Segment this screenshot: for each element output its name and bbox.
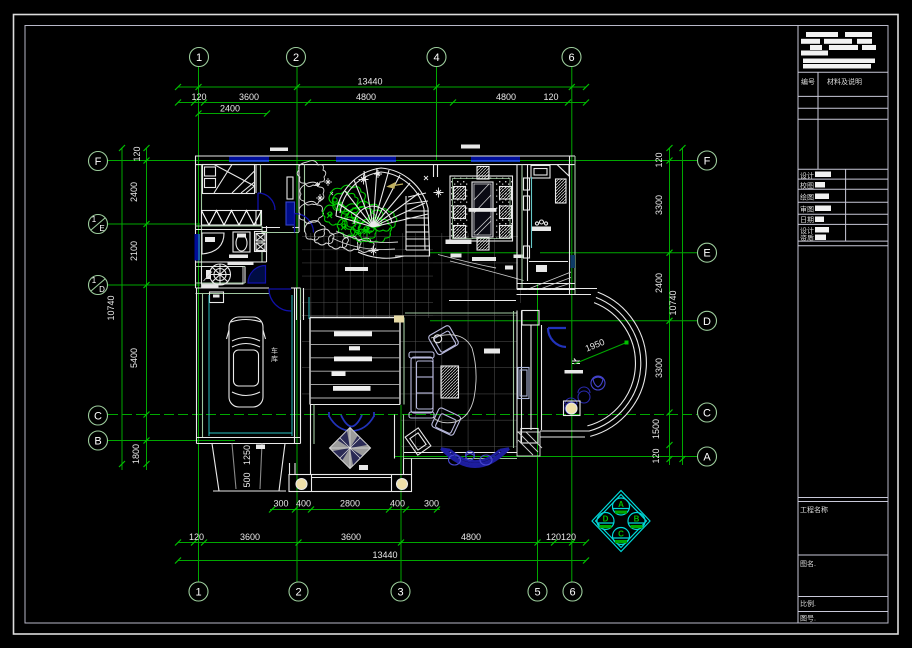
svg-text:1: 1 — [92, 276, 97, 285]
svg-text:2: 2 — [293, 52, 299, 64]
svg-text:审图: 审图 — [800, 205, 814, 214]
svg-text:4800: 4800 — [461, 532, 481, 542]
svg-text:3: 3 — [397, 587, 403, 599]
svg-text:编号: 编号 — [801, 77, 815, 86]
svg-text:300: 300 — [424, 499, 439, 509]
svg-text:120: 120 — [189, 532, 204, 542]
svg-text:4: 4 — [433, 52, 439, 64]
svg-text:B: B — [634, 515, 640, 524]
svg-text:5: 5 — [534, 587, 540, 599]
svg-text:1: 1 — [196, 52, 202, 64]
svg-text:13440: 13440 — [372, 550, 397, 560]
svg-text:2400: 2400 — [654, 273, 664, 293]
svg-text:D: D — [703, 316, 711, 328]
svg-text:13440: 13440 — [357, 77, 382, 87]
svg-text:1250: 1250 — [242, 445, 252, 465]
svg-text:工程名称: 工程名称 — [800, 505, 828, 514]
svg-text:1: 1 — [195, 587, 201, 599]
svg-text:A: A — [703, 452, 711, 464]
svg-text:1: 1 — [92, 215, 97, 224]
svg-text:4800: 4800 — [496, 92, 516, 102]
svg-text:B: B — [94, 436, 101, 448]
svg-text:3300: 3300 — [654, 358, 664, 378]
svg-text:3600: 3600 — [239, 92, 259, 102]
svg-text:400: 400 — [296, 499, 311, 509]
svg-text:设计: 设计 — [800, 226, 814, 235]
svg-text:库: 库 — [271, 354, 278, 363]
svg-text:2400: 2400 — [129, 182, 139, 202]
svg-text:C: C — [703, 408, 711, 420]
svg-text:车: 车 — [271, 346, 278, 355]
svg-text:资质: 资质 — [800, 234, 814, 243]
svg-text:图名.: 图名. — [800, 559, 816, 568]
svg-text:400: 400 — [390, 499, 405, 509]
svg-text:10740: 10740 — [668, 290, 678, 315]
svg-text:D: D — [603, 515, 609, 524]
svg-text:3600: 3600 — [240, 532, 260, 542]
svg-text:材料及说明: 材料及说明 — [827, 77, 862, 86]
svg-text:500: 500 — [242, 472, 252, 487]
svg-text:6: 6 — [569, 587, 575, 599]
svg-text:D: D — [99, 285, 105, 294]
svg-text:2400: 2400 — [220, 104, 240, 114]
svg-text:4800: 4800 — [356, 92, 376, 102]
svg-text:3600: 3600 — [341, 532, 361, 542]
svg-text:2: 2 — [295, 587, 301, 599]
svg-text:120: 120 — [654, 152, 664, 167]
svg-text:校图: 校图 — [800, 181, 814, 190]
svg-text:A: A — [618, 500, 624, 509]
svg-text:C: C — [94, 411, 102, 423]
svg-text:1500: 1500 — [651, 419, 661, 439]
svg-text:5400: 5400 — [129, 348, 139, 368]
svg-text:120: 120 — [132, 146, 142, 161]
svg-text:3300: 3300 — [654, 195, 664, 215]
svg-text:6: 6 — [568, 52, 574, 64]
svg-text:E: E — [99, 224, 104, 233]
svg-text:E: E — [703, 248, 710, 260]
svg-text:10740: 10740 — [106, 295, 116, 320]
svg-text:300: 300 — [273, 499, 288, 509]
svg-text:C: C — [618, 530, 624, 539]
svg-text:绘图: 绘图 — [800, 193, 814, 202]
svg-text:比例.: 比例. — [800, 599, 816, 608]
svg-text:120120: 120120 — [546, 532, 576, 542]
svg-text:2100: 2100 — [129, 241, 139, 261]
svg-text:2800: 2800 — [340, 499, 360, 509]
svg-text:设计: 设计 — [800, 171, 814, 180]
svg-text:1800: 1800 — [131, 444, 141, 464]
svg-text:F: F — [95, 156, 102, 168]
svg-text:F: F — [704, 156, 711, 168]
svg-text:日期: 日期 — [800, 216, 814, 224]
svg-text:120: 120 — [651, 448, 661, 463]
svg-text:120: 120 — [543, 92, 558, 102]
svg-text:图号.: 图号. — [800, 615, 816, 623]
svg-text:120: 120 — [191, 92, 206, 102]
